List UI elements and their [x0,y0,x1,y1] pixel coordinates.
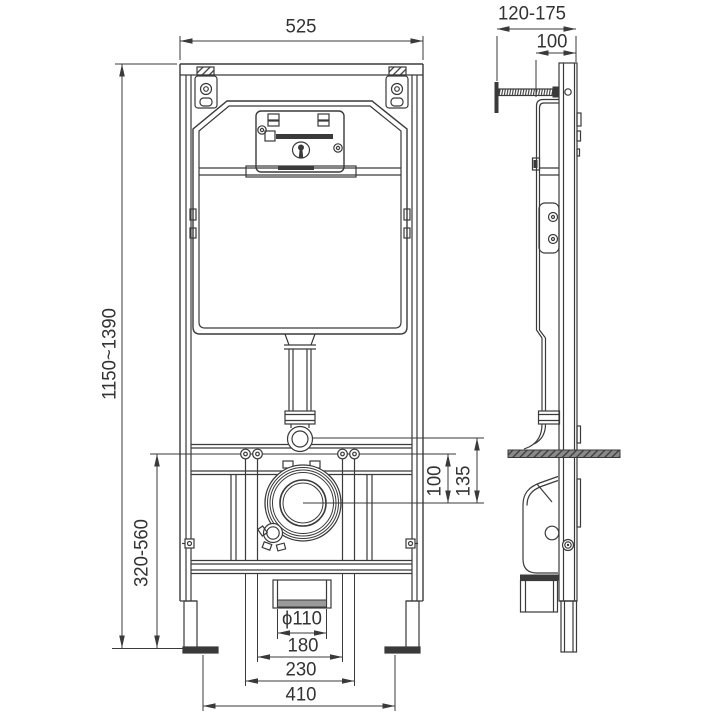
dim-flush-to-outlet: 135 [454,466,474,497]
side-frame-rail [559,63,581,601]
access-panel [246,111,356,177]
flush-pipe [284,334,316,428]
flush-pipe-connector [288,427,313,452]
panel-bolt-head [265,131,275,141]
floor-plate [508,450,620,458]
panel-bolt-shaft [276,134,333,139]
side-drain-socket [520,575,559,613]
dim-inner-bolt-spacing: 180 [288,636,319,656]
dim-drain-diameter: ϕ110 [282,609,322,629]
wall-anchor-rod [495,82,560,113]
panel-screw-right [334,144,342,152]
dim-height-range: 1150~1390 [100,308,120,400]
rail-hole [565,89,571,95]
side-access-panel [539,203,559,253]
dim-top-width: 525 [286,17,317,37]
outlet-side-fitting [258,524,286,551]
dim-outer-bolt-spacing: 230 [286,660,317,680]
dim-bolts-to-outlet: 100 [425,466,445,497]
mounting-bracket-left [195,67,217,108]
front-view [150,64,456,653]
side-view [495,63,621,652]
rail-anchor-left [182,539,194,548]
drain-box [273,580,331,608]
foot-left [183,601,218,653]
side-cistern [533,100,560,339]
side-flush-pipe [524,338,560,449]
waste-bend [523,477,574,574]
foot-right [385,601,420,653]
dim-feet-spacing: 410 [286,685,317,705]
technical-drawing: 525 120-175 100 1150~1390 320-560 100 13… [0,0,720,720]
dim-side-depth-range: 120-175 [498,4,566,24]
mounting-bracket-right [386,67,408,108]
dim-lower-height-range: 320-560 [132,519,152,587]
rail-anchor-right [406,539,418,548]
dim-side-frame-depth: 100 [537,32,568,52]
side-foot [559,601,577,652]
